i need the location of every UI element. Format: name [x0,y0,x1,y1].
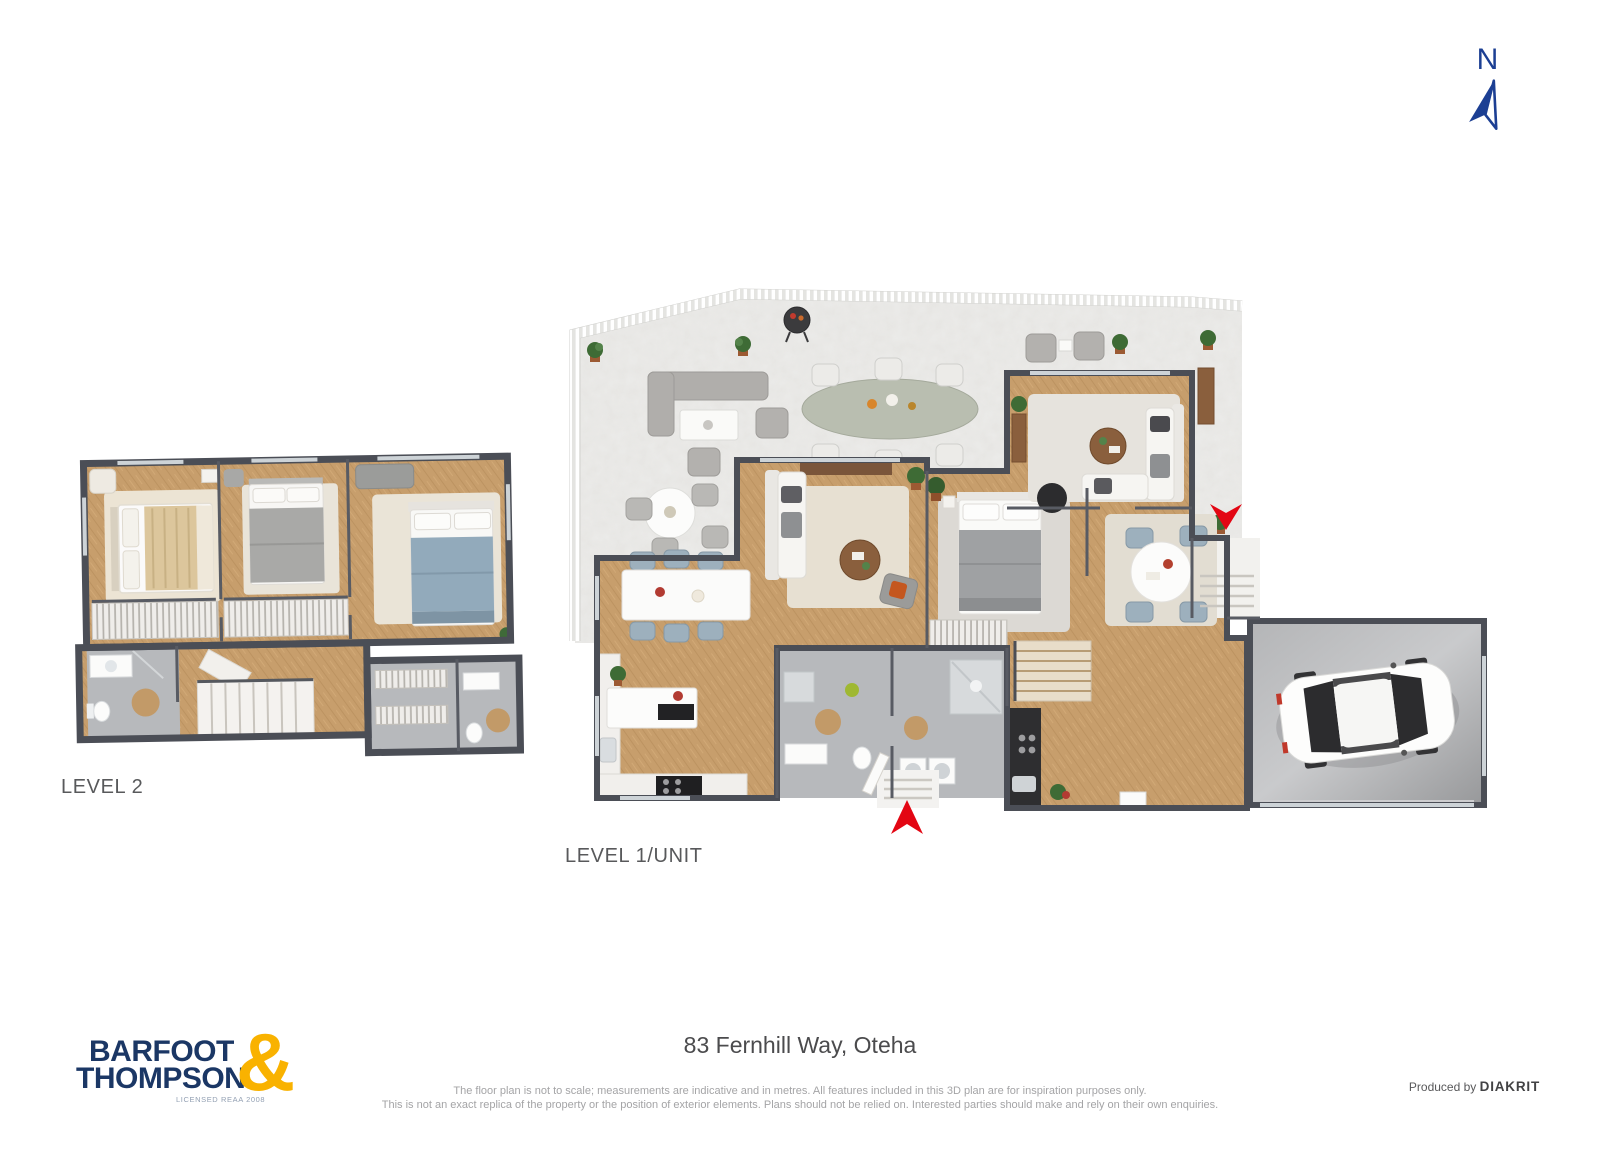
logo-ampersand: & [236,1022,295,1104]
produced-by-label: Produced by [1409,1080,1476,1094]
producer-credit: Produced by DIAKRIT [1409,1079,1540,1094]
compass-n-label: N [1458,44,1518,76]
barfoot-thompson-logo: BARFOOT THOMPSON & LICENSED REAA 2008 [76,1038,396,1104]
north-arrow-icon [1465,78,1511,130]
wardrobe [930,620,1007,646]
outdoor-dining-set [802,358,978,472]
stairs [1015,641,1091,701]
level-1-label: LEVEL 1/UNIT [565,845,703,868]
chair [224,469,244,487]
level-1-floorplan [560,276,1508,838]
level-2-label: LEVEL 2 [61,776,143,799]
garage [1250,621,1484,808]
outdoor-console [1198,368,1214,424]
level-2-floorplan [58,448,524,770]
armchair [90,469,116,493]
tv-console [800,462,892,475]
compass: N [1458,44,1518,135]
sofa [356,464,414,489]
dining-nook [1105,514,1217,626]
producer-name: DIAKRIT [1480,1079,1540,1094]
lounge-room [1011,394,1184,513]
